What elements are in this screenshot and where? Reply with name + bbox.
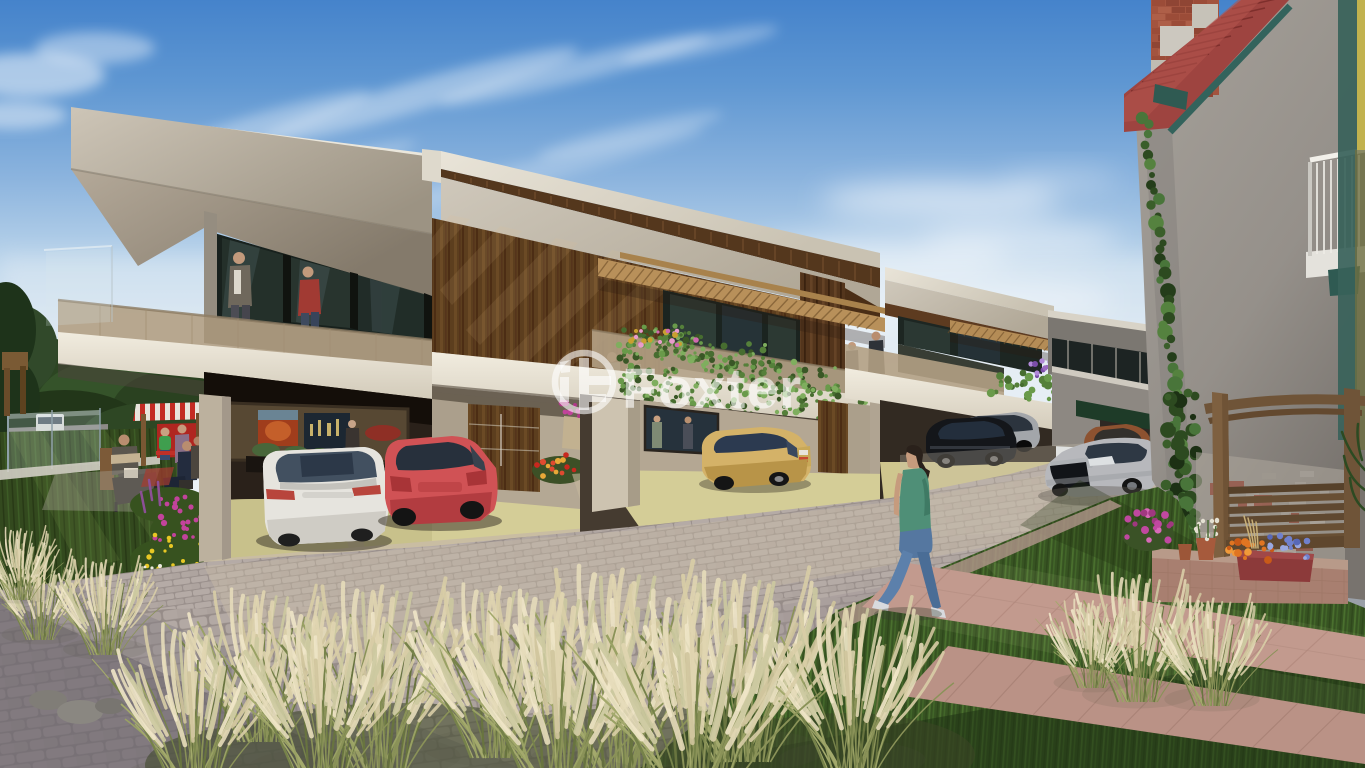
svg-text:Foxter: Foxter <box>622 357 802 421</box>
